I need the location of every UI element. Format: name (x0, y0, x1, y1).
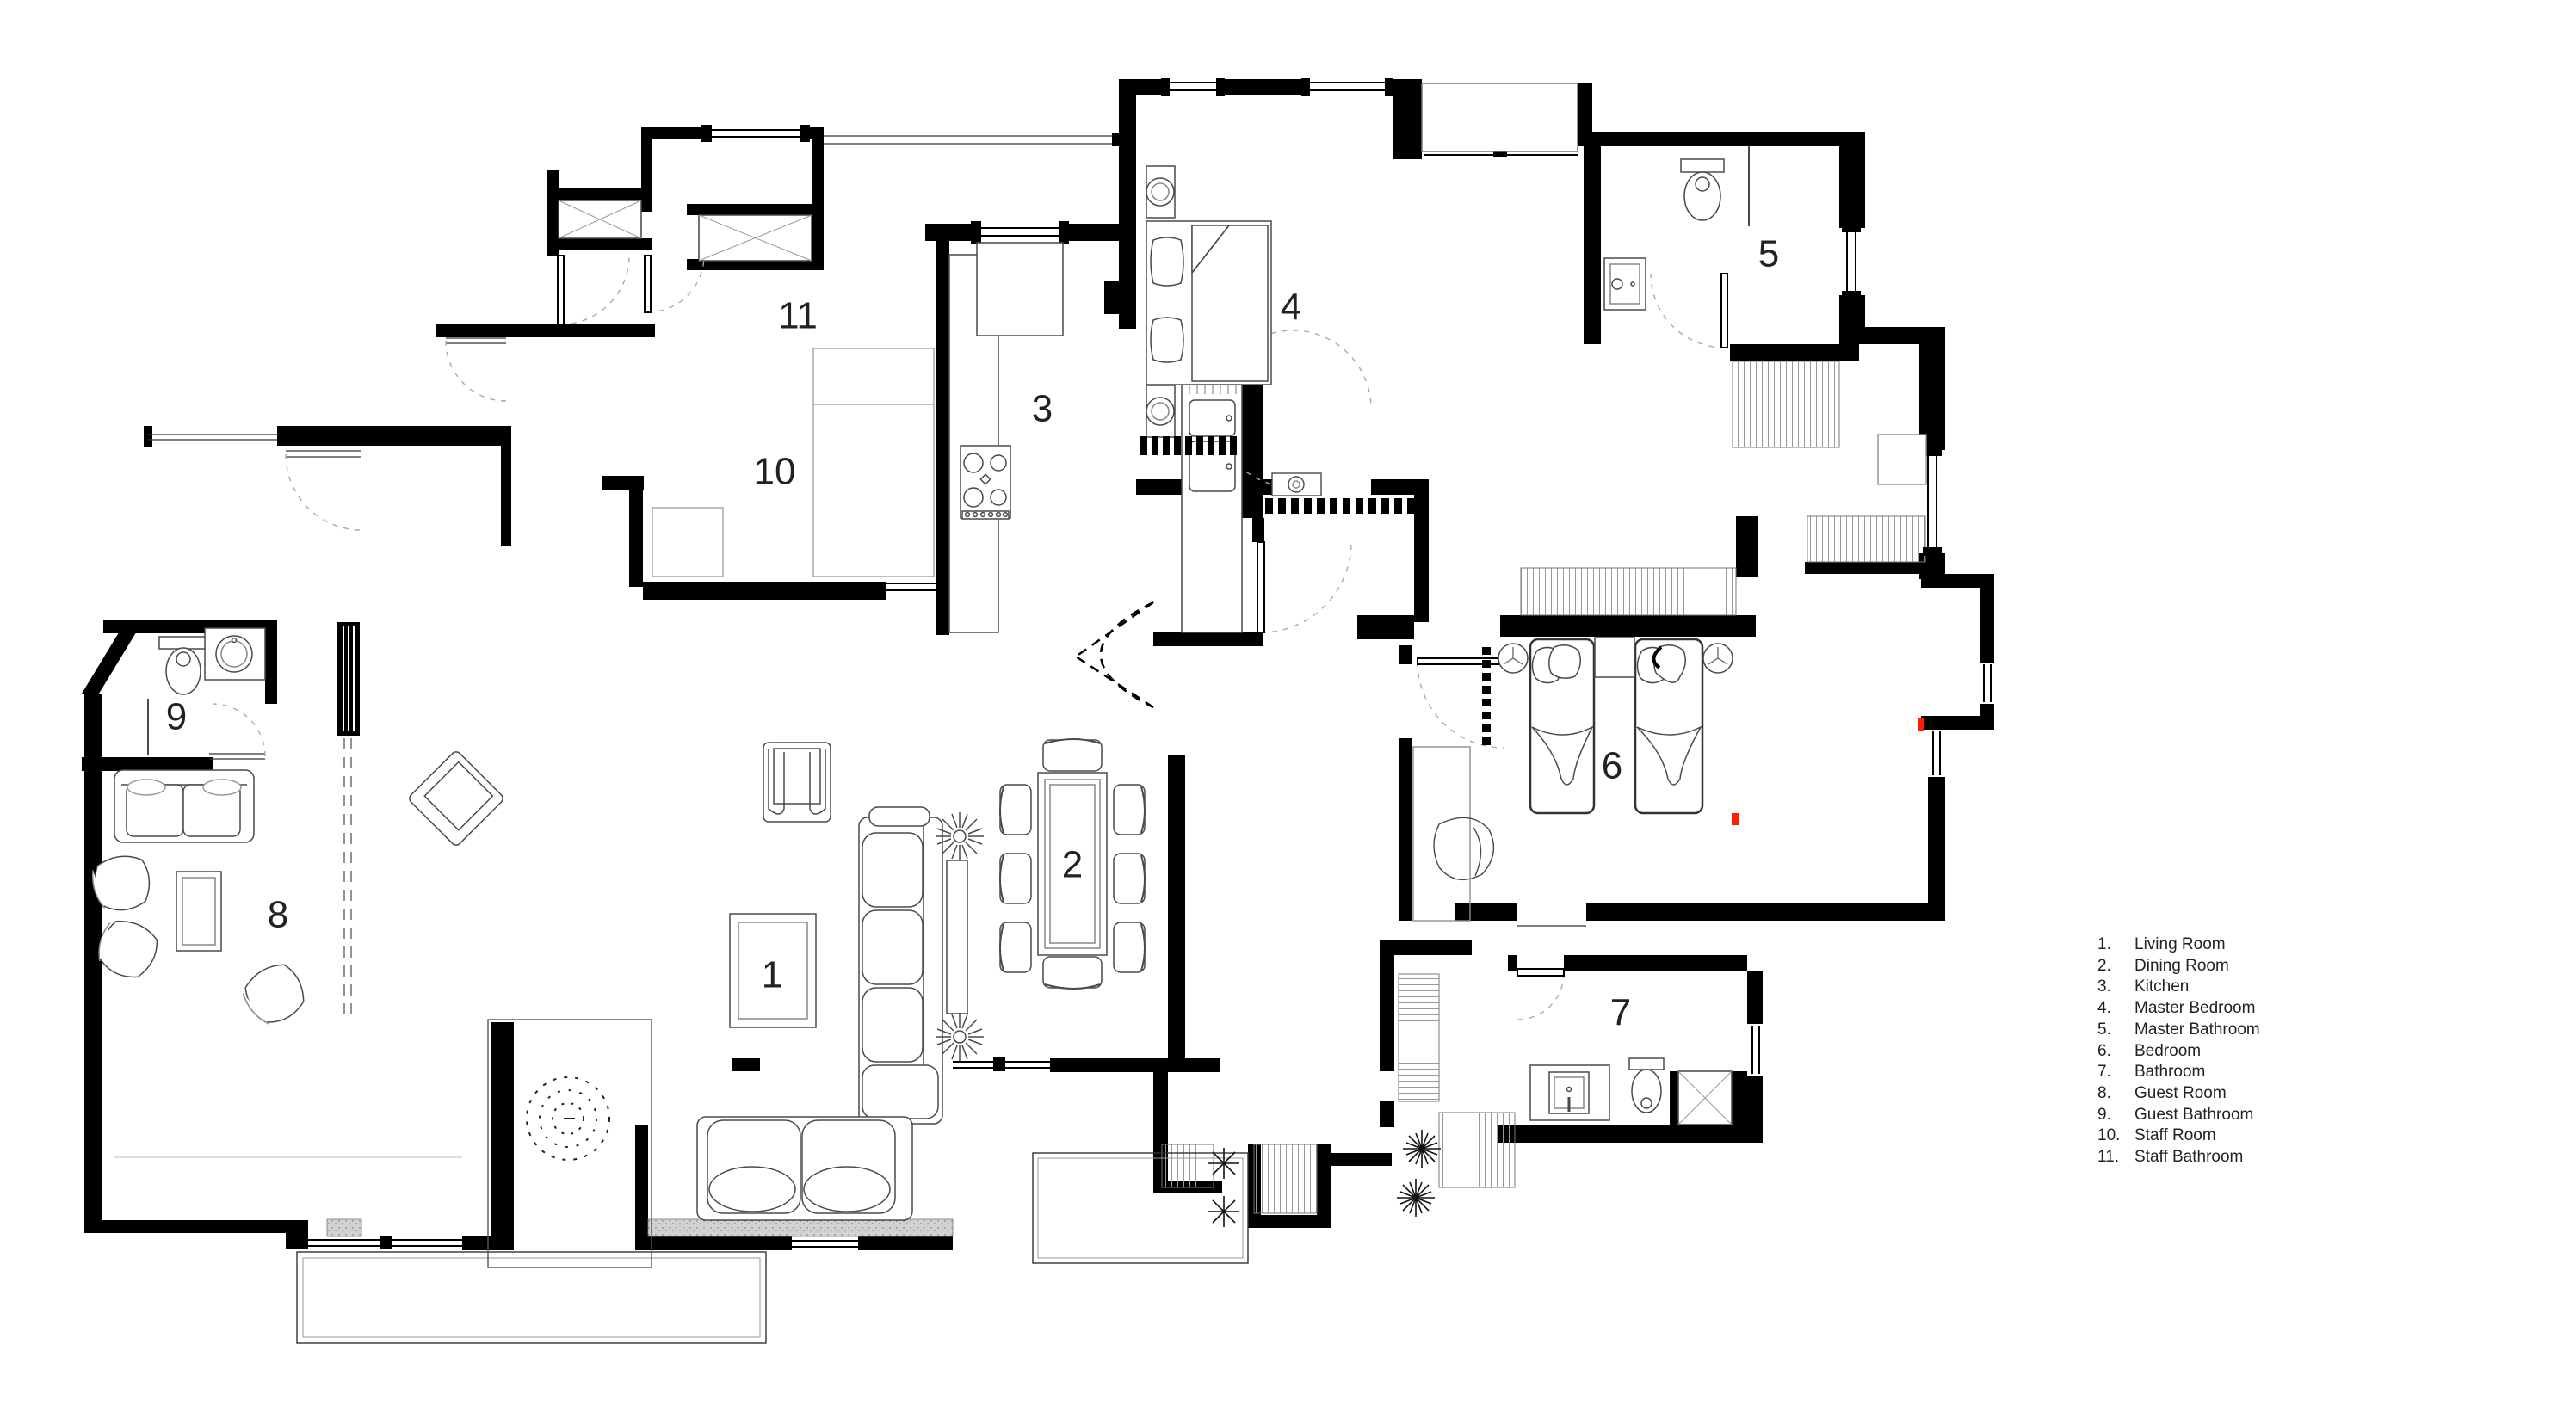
legend-item-label: Staff Room (2134, 1125, 2216, 1147)
master-bedroom-furniture (1146, 83, 1578, 437)
bathroom7-fixtures (1530, 1058, 1664, 1120)
stove (961, 446, 1010, 519)
room-label-7: 7 (1610, 992, 1631, 1034)
sink (1604, 258, 1646, 310)
legend-item: 4.Master Bedroom (2097, 998, 2260, 1020)
closet-hatch-h (1399, 974, 1439, 1101)
legend-item-number: 8. (2097, 1083, 2134, 1105)
master-closet (1422, 83, 1578, 151)
room-label-11: 11 (778, 295, 818, 337)
legend-item-label: Dining Room (2134, 956, 2229, 977)
legend-item-number: 11. (2097, 1147, 2134, 1168)
guest-table (176, 872, 221, 951)
room-label-6: 6 (1602, 745, 1622, 787)
legend-item: 9.Guest Bathroom (2097, 1105, 2260, 1126)
legend-item: 10.Staff Room (2097, 1125, 2260, 1147)
sliding-partition (344, 738, 351, 1020)
legend-item-label: Staff Bathroom (2134, 1147, 2243, 1168)
guest-chair (237, 957, 313, 1033)
legend-item-number: 7. (2097, 1062, 2134, 1083)
bedroom6-desk (1413, 747, 1493, 921)
dressing-stool (1878, 435, 1926, 484)
legend-item-label: Guest Room (2134, 1083, 2227, 1105)
legend-item-number: 4. (2097, 998, 2134, 1020)
legend-item-number: 10. (2097, 1125, 2134, 1147)
legend-item: 7.Bathroom (2097, 1062, 2260, 1083)
room-label-8: 8 (268, 894, 288, 936)
legend-item-number: 1. (2097, 934, 2134, 956)
room-label-5: 5 (1758, 233, 1779, 275)
legend-item: 2.Dining Room (2097, 956, 2260, 977)
laundry-unit (1272, 473, 1321, 496)
legend-item-label: Kitchen (2134, 977, 2189, 998)
legend-item: 6.Bedroom (2097, 1041, 2260, 1063)
legend-item-number: 3. (2097, 977, 2134, 998)
planter-tree (527, 1077, 609, 1160)
legend-item: 8.Guest Room (2097, 1083, 2260, 1105)
room-label-10: 10 (754, 451, 796, 493)
floor-plan-drawing: 1234567891011 (0, 0, 2576, 1412)
l-sofa (859, 807, 942, 1124)
guest-chair (92, 915, 163, 983)
legend-item-label: Master Bedroom (2134, 998, 2255, 1020)
legend-item-label: Living Room (2134, 934, 2226, 956)
floor-plan-page: 1234567891011 1.Living Room2.Dining Room… (0, 0, 2576, 1412)
red-markers (1732, 718, 1924, 825)
guest-sofa (114, 770, 254, 842)
legend-item: 5.Master Bathroom (2097, 1020, 2260, 1041)
legend-item: 1.Living Room (2097, 934, 2260, 956)
toilet (159, 637, 207, 694)
legend-item-label: Master Bathroom (2134, 1020, 2260, 1041)
legend-item: 3.Kitchen (2097, 977, 2260, 998)
room-label-9: 9 (166, 696, 187, 738)
legend-item: 11.Staff Bathroom (2097, 1147, 2260, 1168)
room-label-4: 4 (1281, 287, 1301, 329)
round-sink (205, 628, 265, 680)
legend-item-number: 2. (2097, 956, 2134, 977)
room-label-1: 1 (762, 954, 782, 996)
legend-item-number: 9. (2097, 1105, 2134, 1126)
loveseat (697, 1117, 912, 1220)
console (947, 860, 967, 1014)
legend-item-label: Guest Bathroom (2134, 1105, 2253, 1126)
room-label-3: 3 (1032, 388, 1053, 430)
armchair-rotated (407, 749, 504, 847)
room-label-2: 2 (1062, 844, 1083, 886)
kitchen-sink (1182, 366, 1242, 632)
legend-item-number: 6. (2097, 1041, 2134, 1063)
toilet (1629, 1058, 1664, 1113)
toilet (1681, 159, 1724, 220)
legend-item-label: Bedroom (2134, 1041, 2201, 1063)
armchair-north (763, 743, 831, 822)
legend-item-label: Bathroom (2134, 1062, 2205, 1083)
master-bed (1146, 221, 1271, 385)
legend: 1.Living Room2.Dining Room3.Kitchen4.Mas… (2097, 934, 2260, 1168)
legend-item-number: 5. (2097, 1020, 2134, 1041)
entry-pivot-door (1076, 602, 1153, 707)
